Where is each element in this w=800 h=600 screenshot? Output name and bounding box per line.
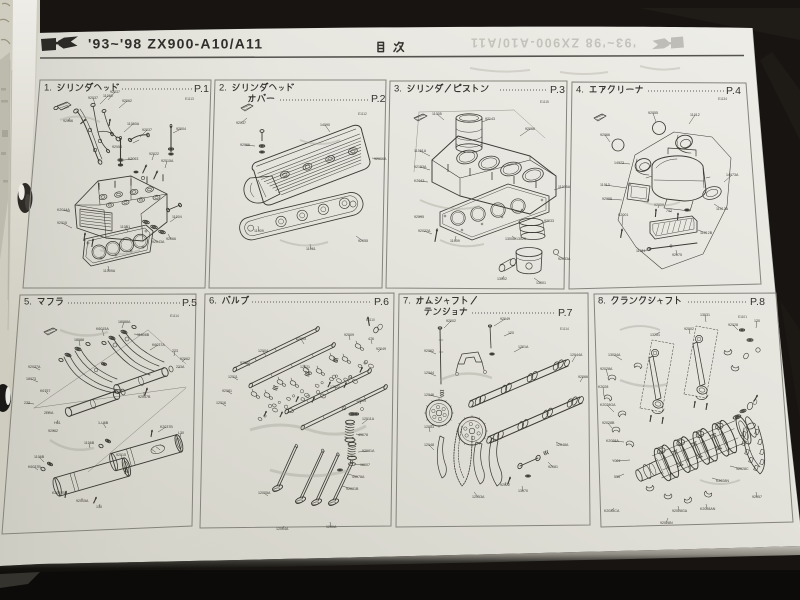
- svg-text:11009: 11009: [450, 239, 460, 243]
- svg-text:92033A: 92033A: [558, 257, 571, 261]
- svg-text:92028B: 92028B: [602, 421, 615, 425]
- svg-text:1.: 1.: [44, 83, 52, 94]
- svg-text:P.3: P.3: [550, 84, 565, 96]
- svg-text:13034A: 13034A: [608, 353, 621, 357]
- svg-text:E1115: E1115: [540, 100, 549, 104]
- svg-text:11012A: 11012A: [716, 207, 729, 211]
- svg-text:11060A: 11060A: [127, 122, 140, 126]
- svg-text:2EDA: 2EDA: [44, 411, 54, 415]
- svg-text:E1113: E1113: [185, 97, 194, 101]
- svg-text:92043A: 92043A: [152, 240, 165, 244]
- svg-text:223A: 223A: [176, 365, 185, 369]
- svg-text:K6037B: K6037B: [28, 465, 41, 469]
- svg-text:K2063: K2063: [128, 157, 138, 161]
- svg-text:1200A: 1200A: [326, 525, 337, 529]
- svg-text:P.1: P.1: [194, 83, 209, 95]
- svg-text:92015A: 92015A: [76, 499, 89, 503]
- svg-text:92028GA: 92028GA: [672, 509, 688, 513]
- svg-text:E1101: E1101: [738, 315, 747, 319]
- svg-text:92015A: 92015A: [161, 159, 174, 163]
- svg-text:7.: 7.: [403, 296, 411, 307]
- svg-text:8.: 8.: [598, 296, 606, 307]
- svg-text:P.6: P.6: [374, 296, 389, 308]
- svg-text:92028C: 92028C: [736, 467, 749, 471]
- svg-text:E1134: E1134: [718, 97, 727, 101]
- svg-text:K2028AN: K2028AN: [700, 507, 716, 511]
- svg-text:92066A: 92066A: [374, 157, 387, 161]
- svg-text:18088A: 18088A: [118, 320, 131, 324]
- svg-text:1-U6B: 1-U6B: [98, 421, 109, 425]
- svg-text:P.4: P.4: [726, 85, 741, 97]
- svg-text:3.: 3.: [394, 84, 402, 95]
- svg-text:K2028CA: K2028CA: [604, 509, 620, 513]
- svg-text:1106B: 1106B: [34, 455, 45, 459]
- svg-text:11005: 11005: [432, 112, 442, 116]
- svg-text:12011: 12011: [228, 375, 238, 379]
- svg-text:E1114: E1114: [170, 314, 179, 318]
- svg-text:11011: 11011: [636, 249, 645, 253]
- svg-text:12048A: 12048A: [556, 443, 569, 447]
- svg-text:K2037B: K2037B: [160, 425, 173, 429]
- svg-text:'93~'98 ZX900-A10/A11: '93~'98 ZX900-A10/A11: [471, 36, 636, 50]
- svg-text:14073A: 14073A: [726, 173, 739, 177]
- svg-text:4.: 4.: [576, 85, 584, 96]
- svg-text:5.: 5.: [24, 297, 32, 308]
- svg-text:12053A: 12053A: [472, 495, 485, 499]
- svg-text:11009A: 11009A: [103, 269, 116, 273]
- svg-text:12004A: 12004A: [276, 527, 289, 531]
- svg-text:E1114: E1114: [560, 327, 569, 331]
- svg-text:K6037A: K6037A: [152, 343, 165, 347]
- svg-text:92081A: 92081A: [362, 449, 375, 453]
- svg-text:K2037BA: K2037BA: [52, 491, 68, 495]
- svg-text:E1112: E1112: [358, 112, 367, 116]
- svg-text:2.: 2.: [219, 83, 227, 94]
- svg-text:12044A: 12044A: [570, 353, 583, 357]
- svg-text:1201A: 1201A: [518, 345, 529, 349]
- svg-text:6.: 6.: [209, 296, 217, 307]
- svg-text:13008/13025: 13008/13025: [505, 237, 526, 241]
- svg-text:P.2: P.2: [371, 93, 386, 105]
- svg-text:P.5: P.5: [182, 297, 197, 309]
- svg-text:P.8: P.8: [750, 296, 765, 308]
- svg-text:92037B: 92037B: [138, 395, 151, 399]
- svg-text:'93~'98 ZX900-A10/A11: '93~'98 ZX900-A10/A11: [88, 36, 262, 52]
- svg-text:11008B: 11008B: [137, 333, 150, 337]
- svg-text:P.7: P.7: [558, 307, 573, 319]
- svg-text:K2001: K2001: [618, 213, 628, 217]
- svg-text:12005A: 12005A: [258, 491, 271, 495]
- svg-text:K6015A: K6015A: [96, 327, 109, 331]
- svg-text:11013: 11013: [600, 183, 610, 187]
- svg-text:12011A: 12011A: [362, 417, 375, 421]
